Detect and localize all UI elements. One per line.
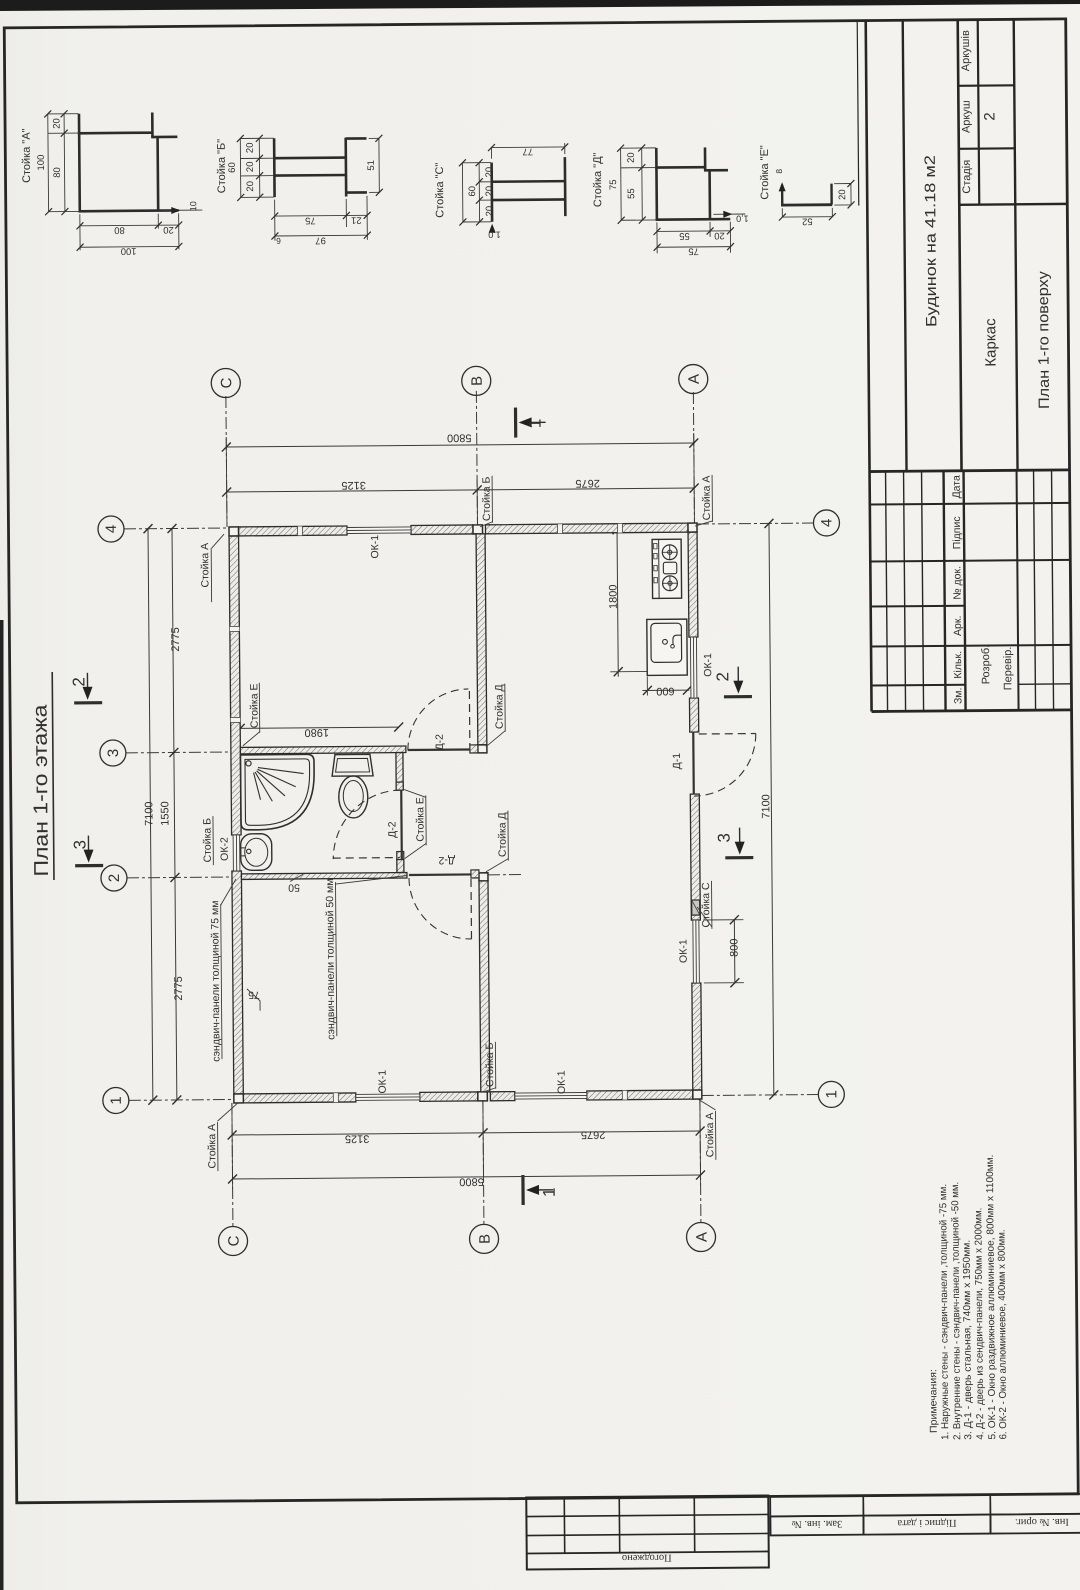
svg-text:3: 3 xyxy=(105,749,122,757)
svg-text:80: 80 xyxy=(114,224,125,235)
svg-text:20: 20 xyxy=(245,142,256,153)
svg-text:Арк.: Арк. xyxy=(952,616,964,636)
svg-text:20: 20 xyxy=(714,230,725,241)
svg-text:С: С xyxy=(226,1235,243,1246)
svg-text:Стойка Б: Стойка Б xyxy=(484,1042,496,1087)
svg-text:3125: 3125 xyxy=(341,479,366,491)
svg-text:2: 2 xyxy=(981,112,998,120)
svg-text:Д-2: Д-2 xyxy=(438,854,455,866)
svg-text:ОК-1: ОК-1 xyxy=(369,535,381,559)
svg-text:Підпис: Підпис xyxy=(951,516,963,549)
svg-text:75: 75 xyxy=(305,215,316,226)
svg-text:1: 1 xyxy=(108,1096,125,1104)
svg-text:2675: 2675 xyxy=(581,1128,606,1140)
svg-text:План 1-го этажа: План 1-го этажа xyxy=(29,704,52,877)
svg-text:Д-1: Д-1 xyxy=(671,753,683,770)
svg-text:Д-2: Д-2 xyxy=(434,734,446,751)
svg-text:1,0: 1,0 xyxy=(736,214,749,224)
svg-text:Стойка "С": Стойка "С" xyxy=(434,163,446,218)
svg-text:80: 80 xyxy=(52,167,63,178)
svg-text:60: 60 xyxy=(467,186,478,197)
svg-text:600: 600 xyxy=(656,685,674,697)
svg-text:Стойка А: Стойка А xyxy=(704,1113,716,1158)
svg-text:75: 75 xyxy=(608,179,619,190)
svg-text:3: 3 xyxy=(715,833,734,843)
svg-text:1980: 1980 xyxy=(304,726,329,738)
svg-text:С: С xyxy=(218,377,235,388)
svg-text:100: 100 xyxy=(36,155,47,171)
svg-text:Стойка А: Стойка А xyxy=(701,476,713,521)
svg-text:Стойка А: Стойка А xyxy=(199,543,211,588)
svg-text:Стойка Б: Стойка Б xyxy=(481,476,493,521)
svg-text:ОК-1: ОК-1 xyxy=(556,1070,568,1094)
svg-text:1. Наружные стены - сэндвич-па: 1. Наружные стены - сэндвич-панели ,толщ… xyxy=(938,1184,951,1440)
svg-text:6: 6 xyxy=(276,236,281,246)
svg-text:1: 1 xyxy=(540,1187,559,1197)
svg-text:Стойка С: Стойка С xyxy=(700,882,712,928)
svg-text:20: 20 xyxy=(837,189,848,200)
svg-text:5800: 5800 xyxy=(459,1175,484,1187)
svg-text:6. ОК-2 - Окно аллюминиевое, 4: 6. ОК-2 - Окно аллюминиевое, 400мм х 800… xyxy=(996,1229,1009,1439)
svg-text:2: 2 xyxy=(713,672,732,682)
svg-text:План 1-го поверху: План 1-го поверху xyxy=(1035,270,1053,409)
svg-text:Підпис і дата: Підпис і дата xyxy=(897,1517,956,1529)
svg-text:Стойка "А": Стойка "А" xyxy=(21,128,33,183)
svg-text:Стойка А: Стойка А xyxy=(206,1124,218,1169)
svg-text:75: 75 xyxy=(688,246,699,257)
svg-text:20: 20 xyxy=(245,161,256,172)
svg-text:Аркушів: Аркушів xyxy=(960,30,972,71)
svg-text:№ док.: № док. xyxy=(951,566,963,600)
svg-text:А: А xyxy=(693,1232,710,1242)
svg-text:2775: 2775 xyxy=(170,627,182,652)
svg-text:3125: 3125 xyxy=(345,1132,370,1144)
svg-text:2775: 2775 xyxy=(173,976,185,1001)
svg-text:97: 97 xyxy=(315,235,326,246)
svg-text:Стойка Б: Стойка Б xyxy=(201,818,213,863)
svg-text:В: В xyxy=(477,1234,494,1244)
svg-text:Розроб.: Розроб. xyxy=(980,645,992,685)
svg-text:50: 50 xyxy=(288,881,300,893)
svg-text:В: В xyxy=(469,376,486,386)
svg-text:ОК-1: ОК-1 xyxy=(702,653,714,677)
svg-text:77: 77 xyxy=(522,146,533,157)
svg-text:Аркуш: Аркуш xyxy=(960,100,972,133)
svg-text:8: 8 xyxy=(774,169,784,174)
svg-text:Каркас: Каркас xyxy=(982,318,999,367)
svg-text:Інв. № ориг.: Інв. № ориг. xyxy=(1015,1516,1069,1527)
svg-text:Будинок на 41.18 м2: Будинок на 41.18 м2 xyxy=(922,155,940,327)
svg-text:Зм.: Зм. xyxy=(952,688,964,705)
svg-text:2: 2 xyxy=(69,677,88,687)
svg-text:7100: 7100 xyxy=(760,794,772,819)
svg-text:Стойка Е: Стойка Е xyxy=(414,797,426,842)
svg-text:ОК-1: ОК-1 xyxy=(377,1070,389,1094)
svg-text:Погоджено: Погоджено xyxy=(622,1552,672,1563)
svg-text:1800: 1800 xyxy=(607,584,619,609)
svg-text:20: 20 xyxy=(163,224,174,235)
svg-text:20: 20 xyxy=(52,118,63,129)
svg-text:4. Д-2 - дверь из сендвич-пане: 4. Д-2 - дверь из сендвич-панели, 750мм … xyxy=(973,1208,986,1440)
svg-text:10: 10 xyxy=(188,201,198,211)
svg-text:Кільк.: Кільк. xyxy=(952,651,964,679)
svg-text:20: 20 xyxy=(484,206,495,217)
svg-text:20: 20 xyxy=(245,181,256,192)
svg-text:20: 20 xyxy=(626,152,637,163)
svg-text:21: 21 xyxy=(351,214,362,225)
svg-text:800: 800 xyxy=(729,938,741,956)
svg-text:52: 52 xyxy=(802,216,813,227)
svg-text:51: 51 xyxy=(366,160,377,171)
svg-text:Перевір.: Перевір. xyxy=(1002,646,1014,690)
svg-text:5800: 5800 xyxy=(447,431,472,443)
svg-text:Стойка Д: Стойка Д xyxy=(496,812,508,857)
svg-text:2: 2 xyxy=(106,874,123,882)
svg-text:3: 3 xyxy=(70,840,89,850)
svg-text:А: А xyxy=(686,374,703,384)
svg-text:1: 1 xyxy=(526,419,545,429)
svg-text:7100: 7100 xyxy=(143,801,155,826)
svg-text:55: 55 xyxy=(626,188,637,199)
svg-text:1: 1 xyxy=(823,1090,840,1098)
svg-text:100: 100 xyxy=(121,245,137,256)
svg-text:Стойка Е: Стойка Е xyxy=(248,683,260,728)
svg-text:60: 60 xyxy=(227,162,238,173)
svg-text:20: 20 xyxy=(484,167,495,178)
svg-text:20: 20 xyxy=(484,186,495,197)
svg-text:4: 4 xyxy=(818,519,835,527)
svg-text:Д-2: Д-2 xyxy=(386,821,398,838)
svg-text:Стадія: Стадія xyxy=(961,160,973,194)
svg-text:Стойка Д: Стойка Д xyxy=(493,684,505,729)
svg-text:Зам. інв. №: Зам. інв. № xyxy=(792,1518,843,1529)
svg-text:Дата: Дата xyxy=(951,475,963,499)
svg-text:4: 4 xyxy=(103,525,120,533)
svg-text:55: 55 xyxy=(679,230,690,241)
svg-text:3. Д-1 - дверь стальная, 740м: 3. Д-1 - дверь стальная, 740мм х 1950мм. xyxy=(962,1240,975,1440)
svg-text:Стойка "Д": Стойка "Д" xyxy=(592,152,604,207)
svg-text:1550: 1550 xyxy=(159,801,171,826)
svg-text:Стойка "Е": Стойка "Е" xyxy=(759,145,771,200)
svg-text:2675: 2675 xyxy=(575,477,600,489)
svg-text:Примечания:: Примечания: xyxy=(928,1369,940,1433)
svg-text:ОК-1: ОК-1 xyxy=(678,939,690,963)
svg-text:ОК-2: ОК-2 xyxy=(219,837,231,861)
